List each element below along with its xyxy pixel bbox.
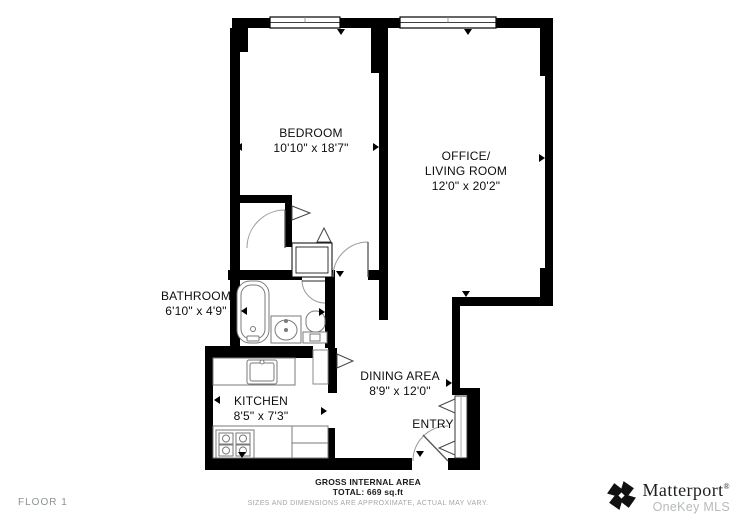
room-name: DINING AREA <box>330 369 470 384</box>
dining-closet <box>313 350 328 384</box>
wall-bathroom-bottom <box>205 346 313 358</box>
branding-block: Matterport® OneKey MLS <box>605 477 730 514</box>
marker-arrow-icon <box>337 29 345 35</box>
wall-bedroom-bottom <box>232 195 292 203</box>
bedroom-closet-bifold-icon <box>292 206 310 220</box>
dining-closet-bifold-icon <box>337 354 353 368</box>
mls-name: OneKey MLS <box>653 500 730 514</box>
wall-right <box>545 28 553 297</box>
room-dims: 10'10" x 18'7" <box>221 141 401 156</box>
bedroom-closet-door <box>247 210 285 248</box>
wall-closet-divider <box>285 195 292 247</box>
room-label-entry: ENTRY <box>375 417 491 432</box>
room-name: KITCHEN <box>191 394 331 409</box>
room-label-kitchen: KITCHEN 8'5" x 7'3" <box>191 394 331 424</box>
brand-wordmark: Matterport <box>643 480 724 500</box>
entry-closet-bifold-icon-1 <box>439 399 455 413</box>
room-name: OFFICE/ LIVING ROOM <box>396 149 536 179</box>
room-label-bathroom: BATHROOM 6'10" x 4'9" <box>126 289 266 319</box>
wall-bottom-right <box>448 458 480 470</box>
marker-arrow-icon <box>416 451 424 457</box>
hall-closet-bifold-icon <box>317 228 331 242</box>
bedroom-window <box>270 17 340 28</box>
wall-kitchen-divider-lower <box>328 428 335 458</box>
marker-arrow-icon <box>336 271 344 277</box>
room-label-dining: DINING AREA 8'9" x 12'0" <box>330 369 470 399</box>
room-label-office-living: OFFICE/ LIVING ROOM 12'0" x 20'2" <box>396 149 536 194</box>
kitchen-sink <box>247 360 277 384</box>
wall-office-bottom <box>452 297 553 306</box>
floor-label: FLOOR 1 <box>18 497 68 508</box>
hall-closet <box>292 243 332 277</box>
room-label-bedroom: BEDROOM 10'10" x 18'7" <box>221 126 401 156</box>
bathroom-sink <box>271 316 301 343</box>
room-dims: 8'9" x 12'0" <box>330 384 470 399</box>
wall-bottom-left <box>205 458 412 470</box>
entry-closet-bifold-icon-2 <box>439 441 455 455</box>
brand-name: Matterport® <box>643 477 730 500</box>
room-dims: 8'5" x 7'3" <box>191 409 331 424</box>
wall-bathroom-top <box>228 270 302 280</box>
room-dims: 6'10" x 4'9" <box>126 304 266 319</box>
toilet <box>303 311 327 343</box>
room-name: BEDROOM <box>221 126 401 141</box>
floorplan-drawing <box>0 0 736 520</box>
trademark-symbol: ® <box>724 482 730 491</box>
wall-middle <box>379 28 388 320</box>
marker-arrow-icon <box>539 154 545 162</box>
stove <box>216 430 254 458</box>
office-window <box>400 17 496 28</box>
marker-arrow-icon <box>464 29 472 35</box>
marker-arrow-icon <box>462 291 470 297</box>
matterport-pinwheel-icon <box>605 479 638 512</box>
brand-text: Matterport® OneKey MLS <box>643 477 730 514</box>
room-name: BATHROOM <box>126 289 266 304</box>
room-dims: 12'0" x 20'2" <box>396 179 536 194</box>
bathroom-door <box>302 280 325 303</box>
floorplan-page: BEDROOM 10'10" x 18'7" OFFICE/ LIVING RO… <box>0 0 736 520</box>
room-name: ENTRY <box>375 417 491 432</box>
